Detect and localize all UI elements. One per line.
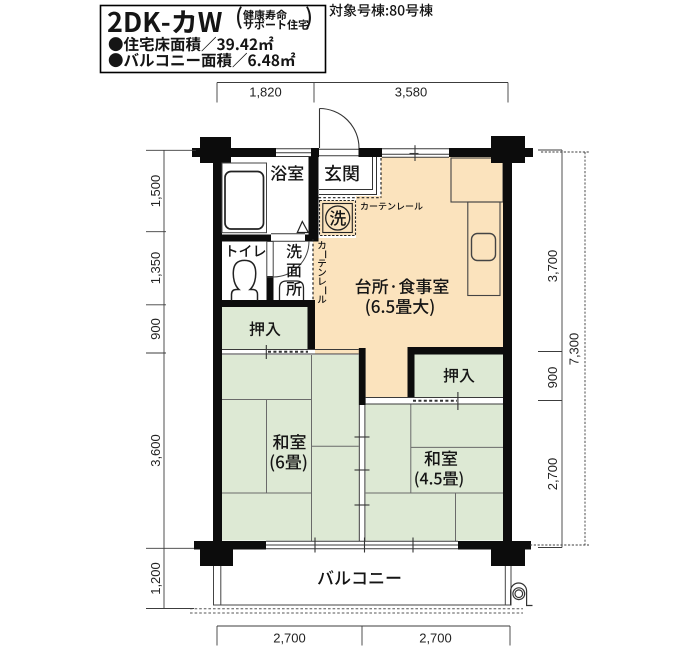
svg-text:1,350: 1,350 bbox=[148, 252, 163, 285]
svg-text:3,700: 3,700 bbox=[545, 250, 560, 283]
svg-text:3,600: 3,600 bbox=[148, 434, 163, 467]
svg-text:3,580: 3,580 bbox=[395, 85, 428, 100]
svg-text:2,700: 2,700 bbox=[419, 631, 452, 646]
svg-text:1,500: 1,500 bbox=[148, 175, 163, 208]
svg-text:2,700: 2,700 bbox=[545, 458, 560, 491]
svg-text:900: 900 bbox=[148, 318, 163, 340]
svg-text:7,300: 7,300 bbox=[567, 333, 582, 366]
svg-text:2,700: 2,700 bbox=[273, 631, 306, 646]
svg-text:1,200: 1,200 bbox=[148, 562, 163, 595]
svg-text:900: 900 bbox=[545, 367, 560, 389]
svg-text:1,820: 1,820 bbox=[249, 85, 282, 100]
